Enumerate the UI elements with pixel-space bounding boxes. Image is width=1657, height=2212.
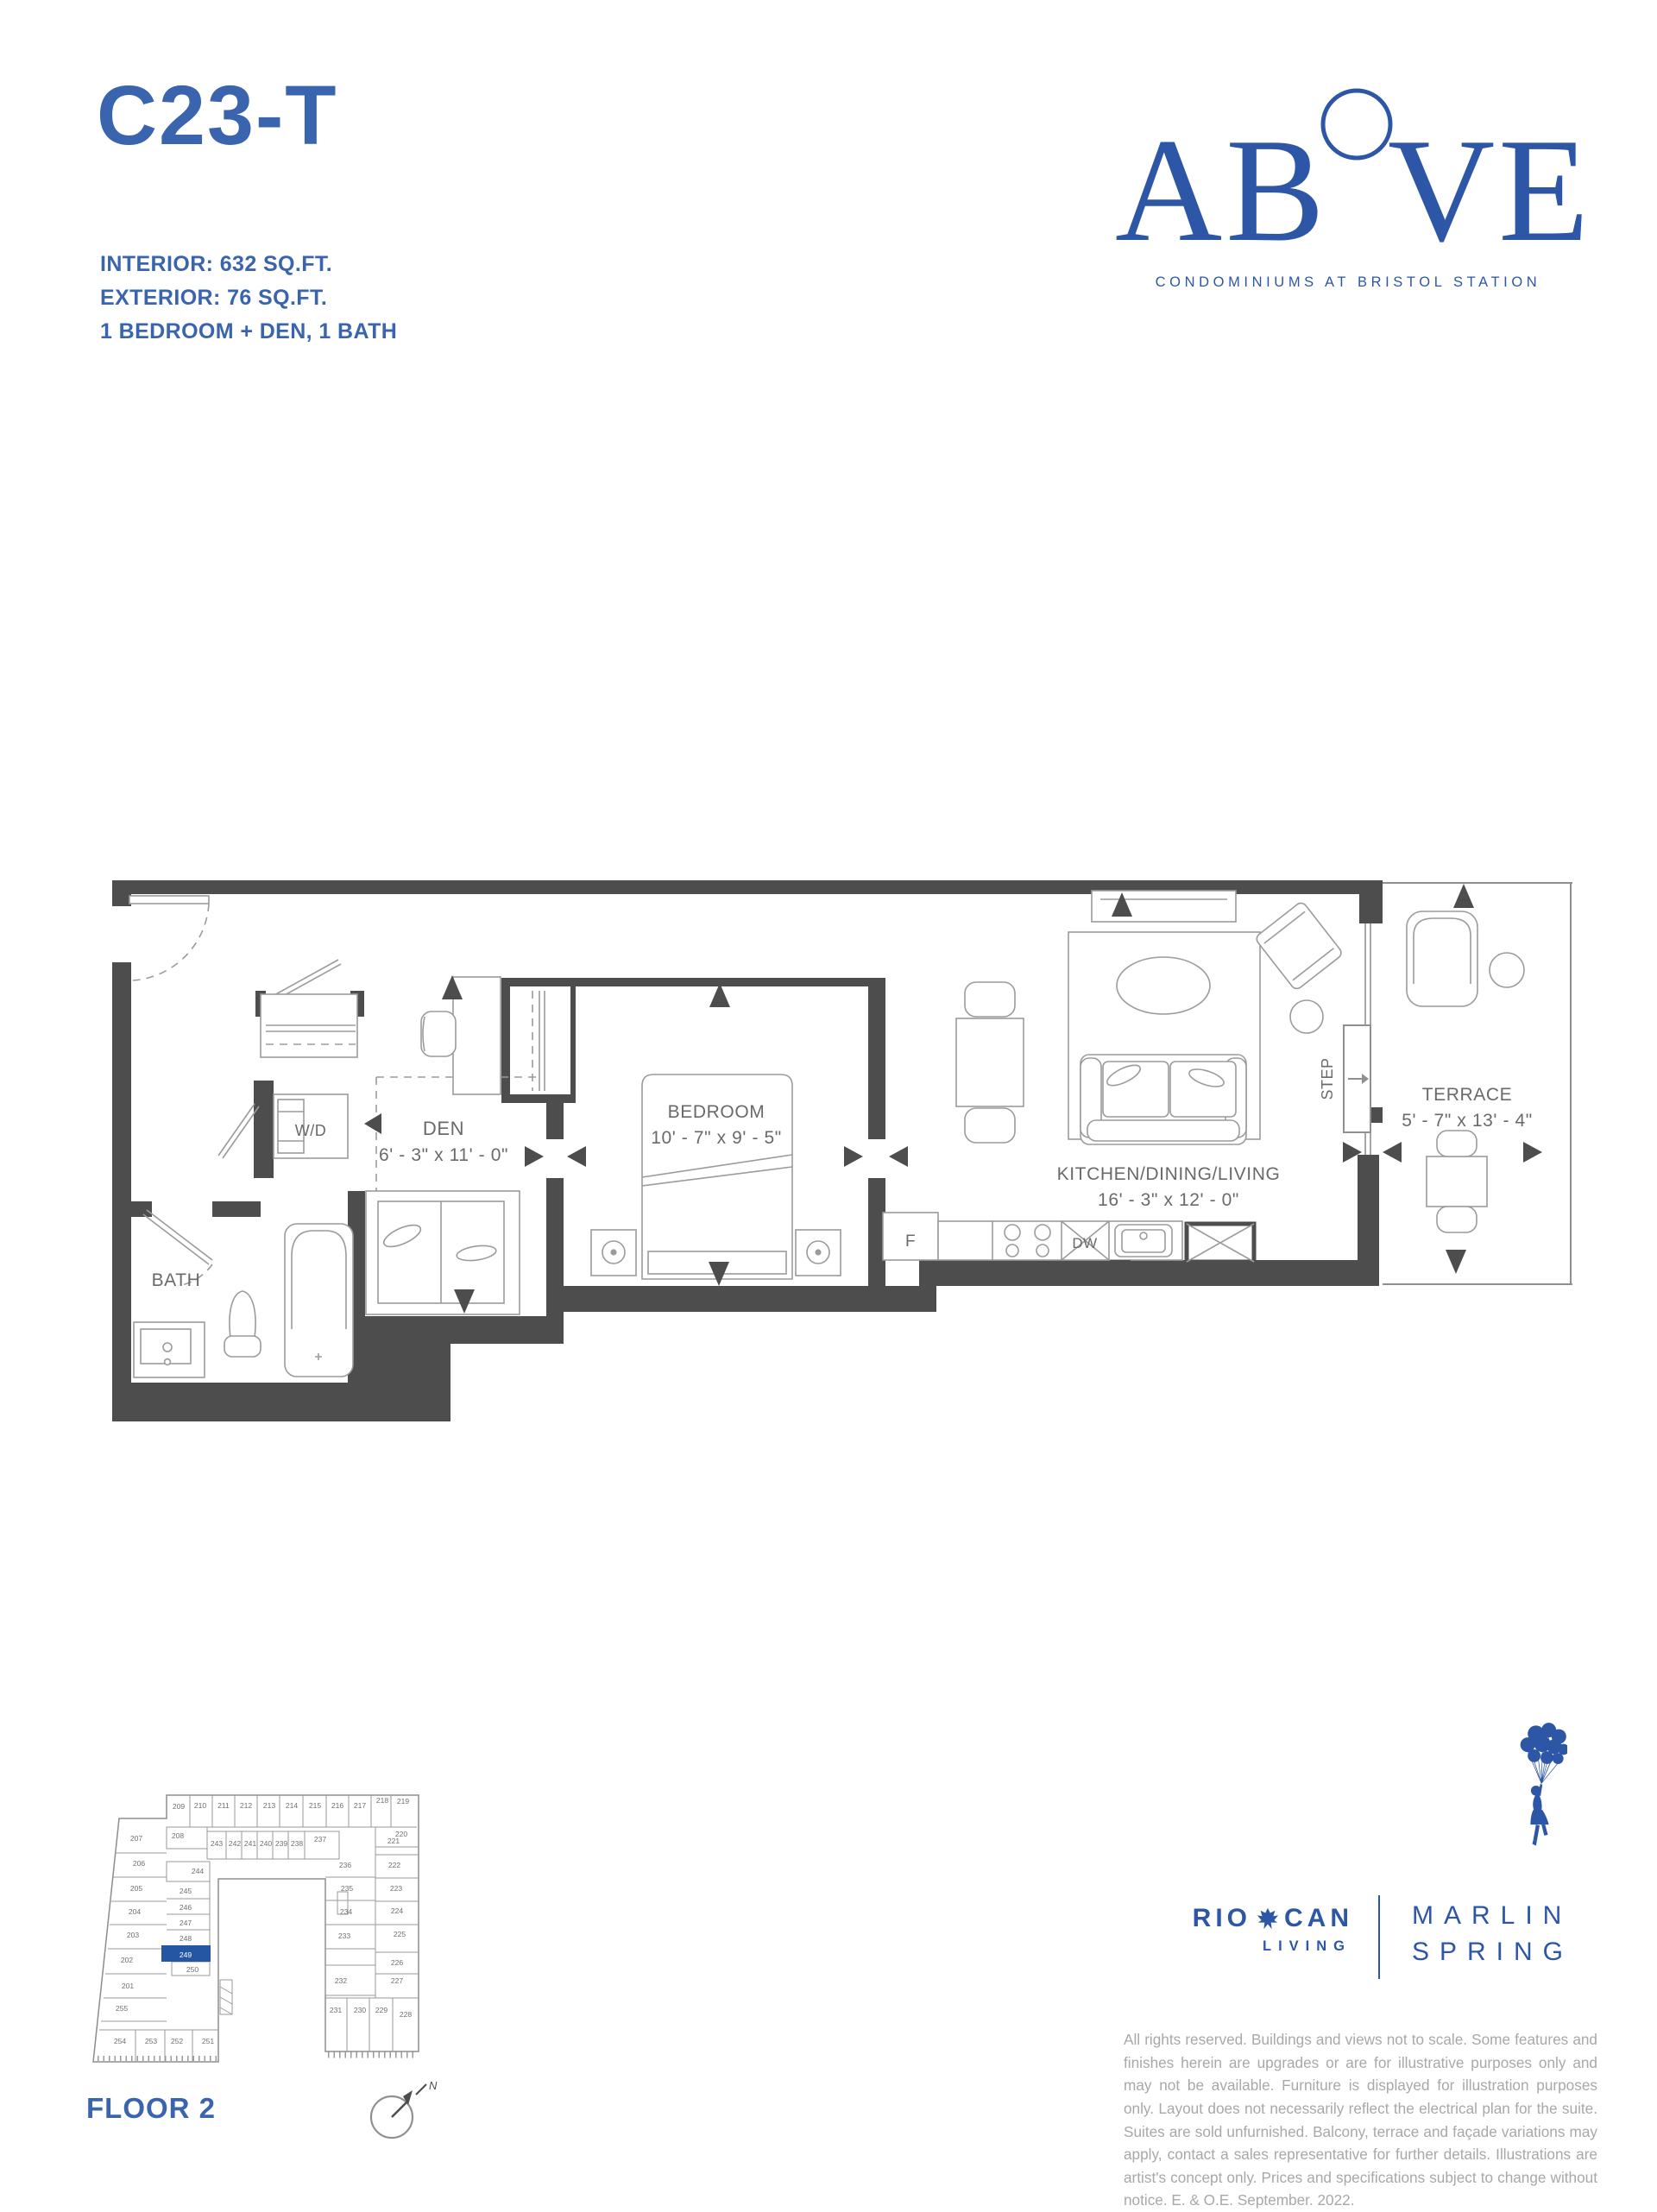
compass-n-label: N xyxy=(429,2079,438,2092)
keyplan-unit-232: 232 xyxy=(335,1976,348,1985)
keyplan-unit-215: 215 xyxy=(309,1801,322,1810)
keyplan-unit-236: 236 xyxy=(339,1861,352,1869)
bedroom-closet xyxy=(532,991,545,1091)
keyplan-unit-227: 227 xyxy=(391,1976,404,1985)
keyplan-unit-228: 228 xyxy=(400,2010,413,2019)
page-title-unit-code: C23-T xyxy=(97,67,338,164)
keyplan-unit-211: 211 xyxy=(217,1801,230,1810)
keyplan-unit-241: 241 xyxy=(244,1839,257,1848)
keyplan-unit-218: 218 xyxy=(376,1796,389,1805)
keyplan-unit-250: 250 xyxy=(186,1965,199,1974)
kitchen-fixtures xyxy=(883,1213,1254,1262)
label-den: DEN xyxy=(423,1118,464,1139)
label-bath: BATH xyxy=(152,1270,201,1290)
legal-disclaimer: All rights reserved. Buildings and views… xyxy=(1124,2028,1597,2212)
compass-icon: N xyxy=(362,2076,445,2148)
keyplan-unit-243: 243 xyxy=(211,1839,224,1848)
keyplan-unit-252: 252 xyxy=(171,2037,184,2045)
keyplan-unit-244: 244 xyxy=(192,1867,205,1875)
label-bedroom-dims: 10' - 7" x 9' - 5" xyxy=(651,1128,782,1148)
keyplan-unit-249: 249 xyxy=(180,1950,192,1959)
keyplan-unit-242: 242 xyxy=(229,1839,242,1848)
riocan-logo: RIO CAN LIVING xyxy=(1168,1904,1353,1955)
marlin-line2: SPRING xyxy=(1412,1934,1573,1970)
spec-interior: INTERIOR: 632 SQ.FT. xyxy=(100,248,397,281)
marlin-spring-logo: MARLIN SPRING xyxy=(1412,1898,1573,1970)
keyplan-units-layer: 2092102112122132142152162172182192202072… xyxy=(114,1796,413,2045)
keyplan-unit-207: 207 xyxy=(130,1834,143,1843)
above-logo: AB VE CONDOMINIUMS AT BRISTOL STATION xyxy=(1113,79,1590,310)
spec-rooms: 1 BEDROOM + DEN, 1 BATH xyxy=(100,315,397,349)
maple-leaf-icon xyxy=(1257,1907,1279,1930)
keyplan-unit-223: 223 xyxy=(390,1884,403,1893)
spec-exterior: EXTERIOR: 76 SQ.FT. xyxy=(100,281,397,315)
keyplan-unit-208: 208 xyxy=(172,1831,185,1840)
keyplan-unit-248: 248 xyxy=(180,1934,192,1943)
label-step: STEP xyxy=(1319,1057,1336,1100)
keyplan-unit-204: 204 xyxy=(129,1907,142,1916)
above-logo-svg: AB VE CONDOMINIUMS AT BRISTOL STATION xyxy=(1113,79,1590,306)
keyplan-unit-230: 230 xyxy=(354,2006,367,2014)
floorplan-drawing: BATH W/D DEN 6' - 3" x 11' - 0" BEDROOM … xyxy=(104,880,1588,1450)
keyplan-unit-233: 233 xyxy=(338,1932,351,1940)
marlin-line1: MARLIN xyxy=(1412,1898,1573,1934)
label-terrace-dims: 5' - 7" x 13' - 4" xyxy=(1402,1111,1533,1131)
keyplan-unit-210: 210 xyxy=(194,1801,207,1810)
keyplan-unit-216: 216 xyxy=(331,1801,344,1810)
label-bedroom: BEDROOM xyxy=(668,1102,765,1122)
keyplan-unit-209: 209 xyxy=(173,1802,186,1811)
keyplan-unit-247: 247 xyxy=(180,1919,192,1927)
keyplan-unit-205: 205 xyxy=(130,1884,143,1893)
keyplan-unit-203: 203 xyxy=(127,1931,140,1939)
keyplan-unit-238: 238 xyxy=(291,1839,304,1848)
keyplan-unit-234: 234 xyxy=(340,1907,353,1916)
keyplan-unit-213: 213 xyxy=(263,1801,276,1810)
label-kitchen-dims: 16' - 3" x 12' - 0" xyxy=(1098,1190,1239,1210)
keyplan-unit-253: 253 xyxy=(145,2037,158,2045)
keyplan-unit-206: 206 xyxy=(133,1859,146,1868)
keyplan-unit-226: 226 xyxy=(391,1958,404,1967)
label-terrace: TERRACE xyxy=(1422,1085,1513,1105)
dining-set xyxy=(956,982,1024,1143)
keyplan-unit-214: 214 xyxy=(286,1801,299,1810)
label-dishwasher: DW xyxy=(1072,1235,1097,1251)
keyplan-unit-251: 251 xyxy=(202,2037,215,2045)
keyplan-unit-217: 217 xyxy=(354,1801,367,1810)
brand-divider xyxy=(1378,1895,1380,1979)
riocan-text-left: RIO xyxy=(1193,1904,1251,1933)
keyplan-unit-235: 235 xyxy=(341,1884,354,1893)
label-fridge: F xyxy=(905,1232,916,1251)
entry-closet xyxy=(261,994,357,1057)
keyplan-unit-255: 255 xyxy=(116,2004,129,2013)
riocan-living-label: LIVING xyxy=(1168,1938,1351,1955)
keyplan-unit-222: 222 xyxy=(388,1861,401,1869)
keyplan: 2092102112122132142152162172182192202072… xyxy=(82,1788,436,2077)
unit-specs: INTERIOR: 632 SQ.FT. EXTERIOR: 76 SQ.FT.… xyxy=(100,248,397,349)
keyplan-unit-254: 254 xyxy=(114,2037,127,2045)
keyplan-unit-231: 231 xyxy=(330,2006,343,2014)
riocan-text-right: CAN xyxy=(1284,1904,1353,1933)
keyplan-unit-221: 221 xyxy=(387,1837,400,1845)
above-logo-ve: VE xyxy=(1388,109,1590,273)
keyplan-unit-201: 201 xyxy=(122,1982,135,1990)
keyplan-unit-212: 212 xyxy=(240,1801,253,1810)
keyplan-unit-219: 219 xyxy=(397,1797,410,1806)
living-room-furniture xyxy=(1068,891,1344,1144)
keyplan-unit-202: 202 xyxy=(121,1956,134,1964)
label-kitchen: KITCHEN/DINING/LIVING xyxy=(1057,1164,1281,1184)
keyplan-unit-237: 237 xyxy=(314,1835,327,1843)
terrace-furniture xyxy=(1407,911,1524,1232)
above-logo-ab: AB xyxy=(1115,109,1328,273)
bath-fixtures xyxy=(134,1224,353,1377)
keyplan-unit-246: 246 xyxy=(180,1903,192,1912)
above-logo-o-circle xyxy=(1323,91,1390,158)
above-logo-tagline: CONDOMINIUMS AT BRISTOL STATION xyxy=(1156,274,1541,290)
keyplan-unit-239: 239 xyxy=(275,1839,288,1848)
keyplan-unit-245: 245 xyxy=(180,1887,192,1895)
keyplan-unit-240: 240 xyxy=(260,1839,273,1848)
floor-label: FLOOR 2 xyxy=(86,2092,216,2125)
balloon-girl-logo-icon xyxy=(1512,1721,1567,1866)
keyplan-unit-225: 225 xyxy=(394,1930,406,1938)
keyplan-unit-224: 224 xyxy=(391,1906,404,1915)
keyplan-unit-229: 229 xyxy=(375,2006,388,2014)
label-wd: W/D xyxy=(295,1122,327,1139)
label-den-dims: 6' - 3" x 11' - 0" xyxy=(379,1145,508,1165)
